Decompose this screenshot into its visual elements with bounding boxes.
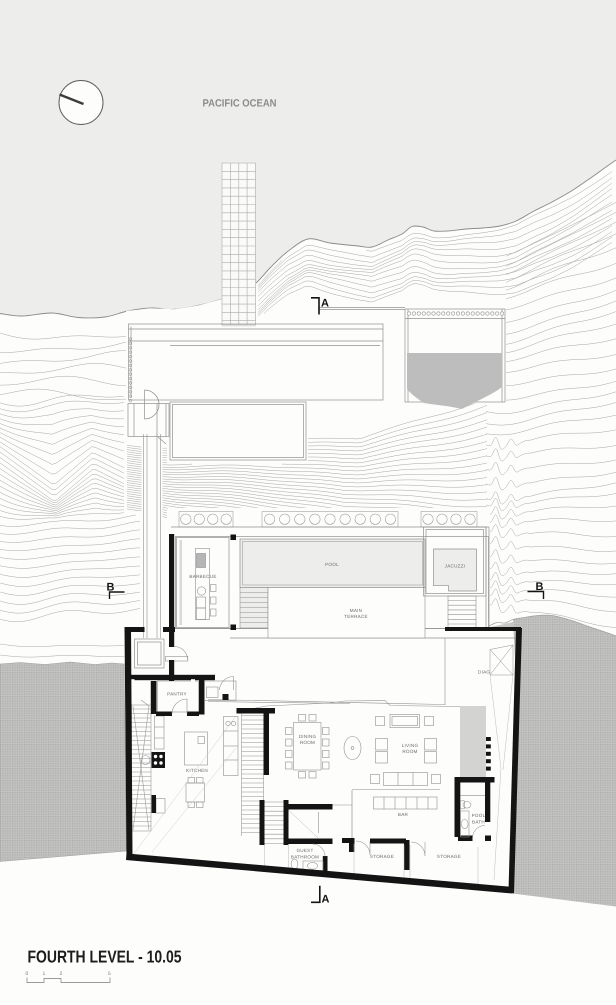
svg-text:A: A (321, 298, 329, 310)
svg-text:PACIFIC OCEAN: PACIFIC OCEAN (203, 98, 277, 110)
svg-text:5: 5 (108, 971, 111, 977)
svg-text:POOL: POOL (472, 813, 486, 818)
svg-text:STORAGE: STORAGE (437, 854, 461, 859)
svg-text:TERRACE: TERRACE (344, 614, 368, 619)
svg-text:ROOM: ROOM (402, 749, 417, 754)
svg-text:GUEST: GUEST (296, 848, 313, 853)
svg-text:A: A (322, 894, 330, 906)
svg-text:2: 2 (60, 971, 63, 977)
svg-text:MAIN: MAIN (350, 608, 362, 613)
svg-text:BATH: BATH (472, 820, 485, 825)
svg-text:BAR: BAR (398, 812, 409, 817)
svg-text:1: 1 (43, 971, 46, 977)
svg-text:0: 0 (26, 971, 29, 977)
svg-text:JACUZZI: JACUZZI (445, 564, 466, 569)
svg-text:STORAGE: STORAGE (370, 854, 394, 859)
svg-text:PANTRY: PANTRY (167, 692, 187, 697)
svg-text:FOURTH LEVEL - 10.05: FOURTH LEVEL - 10.05 (28, 947, 182, 967)
svg-text:ROOM: ROOM (300, 740, 315, 745)
svg-text:POOL: POOL (325, 562, 339, 567)
svg-text:DIAG: DIAG (478, 670, 490, 675)
svg-text:BATHROOM: BATHROOM (291, 855, 319, 860)
svg-text:LIVING: LIVING (402, 743, 419, 748)
svg-text:BARBECUE: BARBECUE (189, 574, 216, 579)
svg-text:DINING: DINING (299, 734, 317, 739)
